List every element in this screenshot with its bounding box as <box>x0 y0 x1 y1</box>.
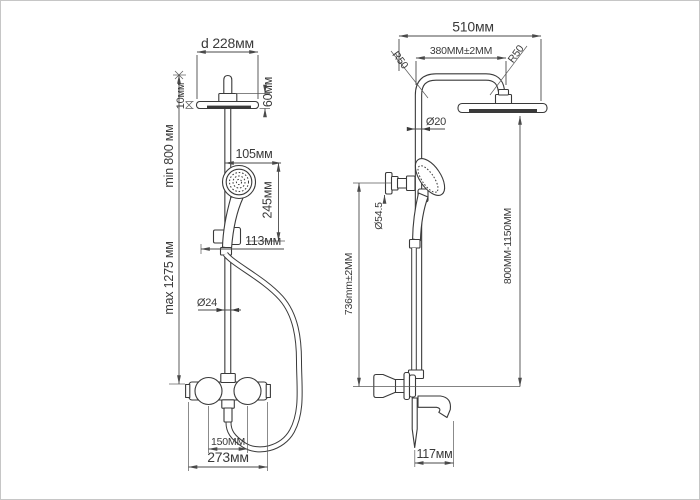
dim-bend-radius-left: R50 <box>389 49 410 71</box>
front-view: d 228мм min 800 мм max 1275 мм 10мм 60мм <box>162 35 300 471</box>
dim-head-height-range: 800MM-1150MM <box>502 208 514 284</box>
dim-holder-width: 113мм <box>245 234 281 248</box>
dim-inlet-spacing: 150MM <box>211 436 245 448</box>
dim-bracket-diameter: Ø54.5 <box>373 202 385 230</box>
dim-head-thickness: 10мм <box>175 83 187 110</box>
shower-technical-drawing: d 228мм min 800 мм max 1275 мм 10мм 60мм <box>1 1 700 500</box>
dim-overall-width: 510мм <box>452 19 494 35</box>
hose-outlet <box>222 400 235 408</box>
hose-nut-side <box>410 240 421 249</box>
riser-union-nut <box>221 374 236 383</box>
dim-riser-max-height: max 1275 мм <box>162 241 176 314</box>
thermostatic-mixer <box>186 374 271 423</box>
dim-head-diameter: d 228мм <box>201 35 254 51</box>
hand-shower-head <box>223 166 256 199</box>
mixer-handle-side <box>374 375 396 398</box>
shower-hose <box>226 254 300 449</box>
dim-hand-shower-height: 245мм <box>261 181 275 218</box>
temperature-knob <box>195 378 222 405</box>
dim-bend-radius-right: R50 <box>506 43 527 65</box>
dim-pipe-diameter: Ø20 <box>426 116 446 128</box>
spray-face-band <box>207 106 251 109</box>
dim-hand-shower-width: 105мм <box>235 147 272 161</box>
shower-arm-stub <box>224 76 232 97</box>
head-connector-nut <box>219 94 237 103</box>
spray-face-band-side <box>469 109 537 112</box>
diverter-knob <box>234 378 261 405</box>
overhead-shower-side <box>458 90 547 113</box>
head-connector-nut-side <box>496 95 512 105</box>
dim-riser-min-height: min 800 мм <box>162 124 176 187</box>
mixer-side <box>353 370 520 448</box>
dim-mixer-width: 273мм <box>207 449 249 465</box>
dim-arm-span: 380MM±2MM <box>430 45 492 57</box>
dim-spout-reach: 117мм <box>416 447 452 461</box>
overhead-shower <box>197 76 259 109</box>
hose-end-tip <box>412 398 417 448</box>
bath-spout <box>418 396 450 418</box>
dim-bracket-height: 736mm±2MM <box>343 253 355 315</box>
dim-head-height: 60мм <box>261 77 275 107</box>
side-view: 510мм 380MM±2MM R50 R50 Ø20 Ø54.5 736mm±… <box>343 19 547 468</box>
dim-riser-diameter: Ø24 <box>197 297 217 309</box>
drawing-canvas: d 228мм min 800 мм max 1275 мм 10мм 60мм <box>0 0 700 500</box>
